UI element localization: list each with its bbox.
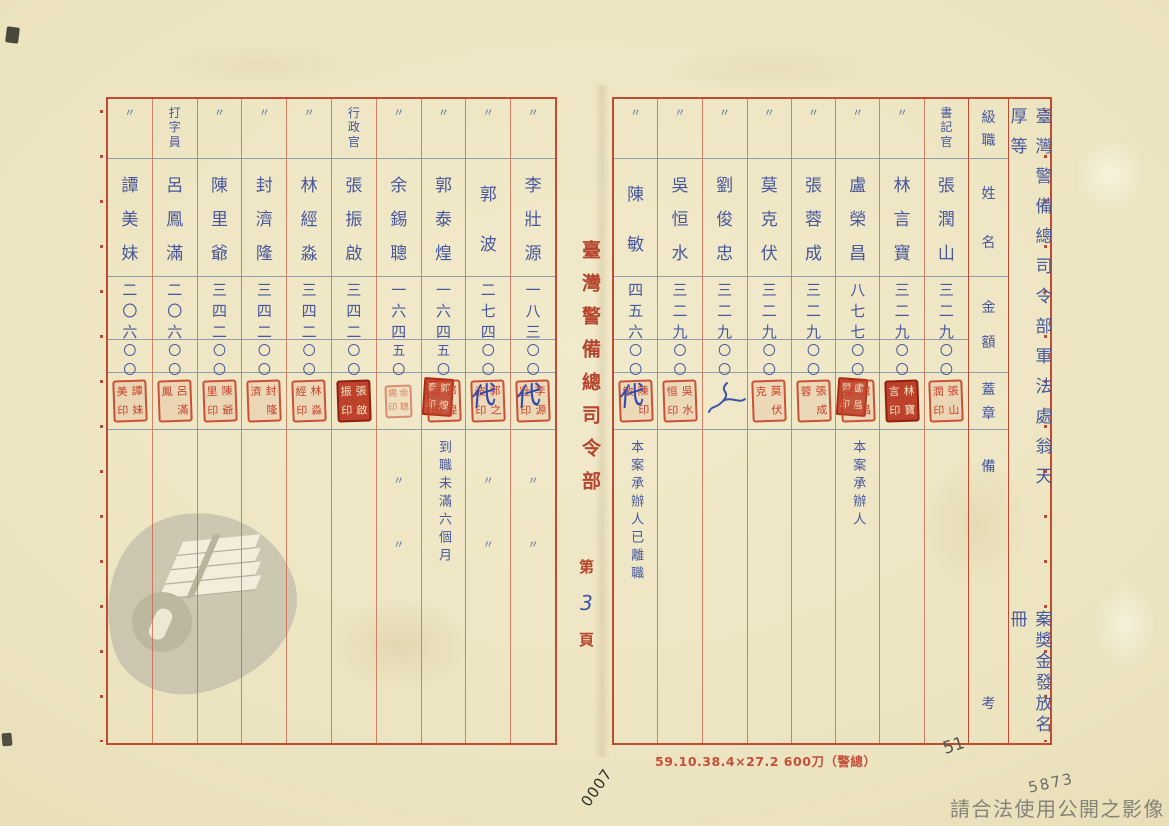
char: 〃	[483, 536, 494, 552]
seal-char: 成	[816, 405, 827, 416]
amount-tail-cell: 五〇	[422, 340, 466, 373]
remark-text: 本案承辦人已離職	[626, 440, 645, 584]
char: 滿	[166, 239, 183, 264]
char: 字	[169, 120, 181, 134]
char: 封	[256, 171, 273, 196]
rank-cell: 行政官	[332, 99, 376, 159]
seal-char: 印	[296, 405, 307, 416]
seal-char: 克	[756, 386, 767, 397]
seal-cell	[703, 373, 747, 430]
char: 張	[345, 171, 362, 196]
roster-column: 〃封濟隆三四二〇〇封濟隆	[241, 99, 286, 743]
char: 隆	[256, 239, 273, 264]
char: 〇	[347, 340, 360, 359]
seal-char: 榮	[844, 386, 855, 397]
char: 三	[346, 279, 361, 300]
char: 譚	[121, 171, 138, 196]
seal-cell: 林經淼印	[287, 373, 331, 430]
seal-char: 淼	[311, 405, 322, 416]
roster-column: 〃林言寶三二九〇〇林言寶印	[879, 99, 923, 743]
char: 三	[302, 279, 317, 300]
char: 三	[212, 279, 227, 300]
char: 五	[628, 300, 643, 321]
name-cell: 張蓉成	[792, 159, 835, 277]
char: 淼	[301, 239, 318, 264]
amount-tail-cell: 〇〇	[880, 340, 923, 373]
char: 二	[481, 279, 496, 300]
name-seal: 余錫聰印	[385, 384, 413, 418]
char: 三	[526, 321, 541, 342]
char: 四	[481, 321, 496, 342]
char: 〇	[527, 340, 540, 359]
seal-cell: 盧榮昌印盧榮昌印	[836, 373, 879, 430]
seal-cell: 張振啟印	[332, 373, 376, 430]
char: 〇	[213, 340, 226, 359]
seal-char: 潤	[933, 386, 944, 397]
char: 陳	[211, 171, 228, 196]
char: 六	[122, 321, 137, 342]
rank-cell: 〃	[198, 99, 242, 159]
amount-cell: 三四二	[242, 277, 286, 340]
rank-cell: 〃	[422, 99, 466, 159]
amount-cell: 一六四	[377, 277, 421, 340]
name-seal: 莫克伏	[752, 379, 787, 422]
name-cell: 吳恒水	[658, 159, 701, 277]
char: 二	[302, 321, 317, 342]
remark-cell: 本案承辦人已離職	[614, 430, 657, 743]
char: 恒	[671, 205, 688, 230]
name-seal: 譚美妹印	[112, 379, 147, 422]
roster-column: 〃劉俊忠三二九〇〇	[702, 99, 747, 743]
name-seal: 郭泰煌印	[426, 379, 461, 422]
char: 李	[525, 171, 542, 196]
roster-column: 〃吳恒水三二九〇〇吳恒水印	[657, 99, 701, 743]
name-cell: 陳里爺	[198, 159, 242, 277]
remark-cell	[658, 430, 701, 743]
amount-tail-cell: 〇〇	[287, 340, 331, 373]
amount-tail-cell: 〇〇	[153, 340, 197, 373]
seal-cell: 陳里爺印	[198, 373, 242, 430]
amount-cell: 一六四	[422, 277, 466, 340]
char: 〇	[168, 340, 181, 359]
char: 張	[805, 171, 822, 196]
seal-char: 隆	[266, 405, 277, 416]
roster-column: 〃林經淼三四二〇〇林經淼印	[286, 99, 331, 743]
char: 〇	[896, 340, 909, 359]
roster-column: 〃張蓉成三二九〇〇張蓉成	[791, 99, 835, 743]
rank-cell: 〃	[614, 99, 657, 159]
char: 三	[762, 279, 777, 300]
char: 一	[391, 279, 406, 300]
char: 〇	[122, 300, 137, 321]
paper-crease	[1060, 120, 1160, 230]
name-seal: 張潤山印	[929, 379, 964, 422]
char: 政	[348, 120, 360, 134]
char: 源	[525, 239, 542, 264]
seal-char: 啟	[356, 405, 367, 416]
char: 六	[167, 321, 182, 342]
seal-cell: 李壯源印代	[511, 373, 555, 430]
char: 〇	[303, 340, 316, 359]
char: 〃	[764, 106, 775, 119]
char: 成	[805, 239, 822, 264]
char: 伏	[761, 239, 778, 264]
header-rank: 級職	[969, 99, 1008, 159]
char: 〃	[483, 472, 494, 488]
char: 盧	[849, 171, 866, 196]
remark-text: 本案承辦人	[848, 440, 867, 530]
seal-char: 里	[206, 386, 217, 397]
amount-cell: 二〇六	[108, 277, 152, 340]
header-remark: 備考	[969, 430, 1008, 743]
char: 二	[672, 300, 687, 321]
roster-column: 〃郭泰煌一六四五〇郭泰煌印郭泰煌印到職未滿六個月	[421, 99, 466, 743]
remark-cell: 〃〃	[466, 430, 510, 743]
char: 煌	[435, 239, 452, 264]
remark-cell	[242, 430, 286, 743]
seal-char: 滿	[177, 405, 188, 416]
char: 九	[717, 321, 732, 342]
seal-char: 經	[296, 386, 307, 397]
amount-tail-cell: 〇〇	[748, 340, 791, 373]
remark-text: 到職未滿六個月	[434, 440, 453, 566]
seal-char: 伏	[771, 405, 782, 416]
left-page-table: 〃李壯源一八三〇〇李壯源印代〃〃〃郭波二七四〇〇郭波之印代〃〃〃郭泰煌一六四五〇…	[106, 97, 557, 745]
name-seal: 封濟隆	[247, 379, 282, 422]
seal-cell: 張蓉成	[792, 373, 835, 430]
roster-column: 〃余錫聰一六四五〇余錫聰印〃〃	[376, 99, 421, 743]
char: 呂	[166, 171, 183, 196]
char: 二	[257, 321, 272, 342]
name-cell: 劉俊忠	[703, 159, 747, 277]
char: 一	[436, 279, 451, 300]
rank-cell: 〃	[880, 99, 923, 159]
header-name: 姓名	[969, 159, 1008, 277]
name-cell: 郭波	[466, 159, 510, 277]
char: 二	[717, 300, 732, 321]
rank-cell: 〃	[511, 99, 555, 159]
roster-column: 〃李壯源一八三〇〇李壯源印代〃〃	[510, 99, 555, 743]
seal-char: 美	[116, 386, 127, 397]
char: 經	[301, 205, 318, 230]
seal-char: 印	[431, 405, 442, 416]
binding-dotted-line-left	[100, 110, 103, 742]
seal-char: 余	[400, 389, 409, 398]
char: 〇	[763, 340, 776, 359]
seal-cell: 呂鳳滿	[153, 373, 197, 430]
char: 書	[940, 106, 952, 120]
char: 莫	[761, 171, 778, 196]
name-cell: 林經淼	[287, 159, 331, 277]
seal-char: 張	[815, 386, 826, 397]
char: 六	[436, 300, 451, 321]
seal-char: 盧	[859, 386, 870, 397]
rank-cell: 〃	[242, 99, 286, 159]
name-cell: 郭泰煌	[422, 159, 466, 277]
char: 〃	[393, 106, 404, 119]
char: 〃	[393, 472, 404, 488]
spine-organization-name: 臺灣警備總司令部	[577, 240, 604, 504]
amount-tail-cell: 〇〇	[511, 340, 555, 373]
seal-char: 莫	[771, 386, 782, 397]
rank-cell: 〃	[108, 99, 152, 159]
char: 林	[301, 171, 318, 196]
char: 〃	[852, 106, 863, 119]
char: 九	[672, 321, 687, 342]
seal-char: 水	[682, 405, 693, 416]
char: 七	[481, 300, 496, 321]
remark-cell: 〃〃	[377, 430, 421, 743]
document-scan: 〃李壯源一八三〇〇李壯源印代〃〃〃郭波二七四〇〇郭波之印代〃〃〃郭泰煌一六四五〇…	[0, 0, 1169, 826]
char: 二	[212, 321, 227, 342]
header-seal: 蓋章	[969, 373, 1008, 430]
amount-tail-cell: 〇〇	[466, 340, 510, 373]
char: 〇	[629, 340, 642, 359]
remark-cell	[703, 430, 747, 743]
char: 〇	[123, 340, 136, 359]
char: 六	[628, 321, 643, 342]
char: 九	[939, 321, 954, 342]
char: 林	[894, 171, 911, 196]
char: 三	[672, 279, 687, 300]
char: 敏	[627, 230, 644, 255]
char: 九	[806, 321, 821, 342]
seal-cell: 莫克伏	[748, 373, 791, 430]
roster-column: 〃譚美妹二〇六〇〇譚美妹印	[108, 99, 152, 743]
page-number-block: 第 3 頁	[579, 556, 594, 650]
seal-char: 印	[934, 405, 945, 416]
amount-cell: 三二九	[792, 277, 835, 340]
amount-tail-cell: 〇〇	[198, 340, 242, 373]
remark-cell	[198, 430, 242, 743]
char: 〇	[940, 340, 953, 359]
char: 記	[940, 120, 952, 134]
amount-tail-cell: 〇〇	[658, 340, 701, 373]
scan-corner-mark	[5, 26, 20, 43]
char: 二	[167, 279, 182, 300]
amount-cell: 三二九	[880, 277, 923, 340]
char: 八	[526, 300, 541, 321]
char: 克	[761, 205, 778, 230]
char: 三	[895, 279, 910, 300]
seal-cell: 陳敏印代	[614, 373, 657, 430]
remark-cell	[287, 430, 331, 743]
name-cell: 張振啟	[332, 159, 376, 277]
char: 四	[302, 300, 317, 321]
seal-cell: 吳恒水印	[658, 373, 701, 430]
name-cell: 余錫聰	[377, 159, 421, 277]
seal-cell: 張潤山印	[925, 373, 968, 430]
amount-cell: 八七七	[836, 277, 879, 340]
amount-cell: 三四二	[198, 277, 242, 340]
seal-char: 煌	[446, 405, 457, 416]
remark-cell	[748, 430, 791, 743]
char: 打	[169, 106, 181, 120]
char: 七	[850, 300, 865, 321]
rank-cell: 〃	[748, 99, 791, 159]
remark-cell	[108, 430, 152, 743]
char: 二	[939, 300, 954, 321]
amount-tail-cell: 〇〇	[792, 340, 835, 373]
header-amount: 金額	[969, 277, 1008, 373]
char: 二	[346, 321, 361, 342]
char: 一	[526, 279, 541, 300]
seal-char: 呂	[176, 386, 187, 397]
char: 啟	[345, 239, 362, 264]
seal-char: 印	[667, 405, 678, 416]
char: 〇	[807, 340, 820, 359]
rank-cell: 〃	[658, 99, 701, 159]
name-seal: 呂鳳滿	[157, 379, 192, 422]
char: 鳳	[166, 205, 183, 230]
char: 劉	[716, 171, 733, 196]
handwritten-signature-mark	[703, 379, 747, 423]
char: 錫	[390, 205, 407, 230]
roster-column: 打字員呂鳳滿二〇六〇〇呂鳳滿	[152, 99, 197, 743]
char: 員	[169, 135, 181, 149]
roster-title-second: 案獎金發放名冊	[1005, 610, 1055, 743]
char: 余	[390, 171, 407, 196]
amount-tail-cell: 〇〇	[614, 340, 657, 373]
name-cell: 莫克伏	[748, 159, 791, 277]
roster-title: 臺灣警備總司令部軍法處翁天厚等	[1005, 107, 1055, 514]
char: 美	[121, 205, 138, 230]
char: 〃	[897, 106, 908, 119]
roster-column: 〃盧榮昌八七七〇〇盧榮昌印盧榮昌印本案承辦人	[835, 99, 879, 743]
char: 九	[762, 321, 777, 342]
name-cell: 封濟隆	[242, 159, 286, 277]
rank-cell: 〃	[792, 99, 835, 159]
seal-char: 妹	[132, 405, 143, 416]
char: 〃	[528, 536, 539, 552]
char: 四	[212, 300, 227, 321]
char: 〇	[718, 340, 731, 359]
char: 四	[628, 279, 643, 300]
seal-cell: 郭波之印代	[466, 373, 510, 430]
remark-cell	[925, 430, 968, 743]
char: 三	[717, 279, 732, 300]
seal-char: 印	[117, 405, 128, 416]
amount-tail-cell: 〇〇	[925, 340, 968, 373]
name-cell: 盧榮昌	[836, 159, 879, 277]
char: 波	[480, 230, 497, 255]
char: 泰	[435, 205, 452, 230]
char: 榮	[849, 205, 866, 230]
char: 〃	[124, 106, 135, 119]
seal-cell: 林言寶印	[880, 373, 923, 430]
char: 〇	[258, 340, 271, 359]
remark-cell	[153, 430, 197, 743]
seal-cell: 余錫聰印	[377, 373, 421, 430]
char: 〃	[674, 106, 685, 119]
char: 二	[895, 300, 910, 321]
handwritten-serial: 0007	[577, 765, 616, 810]
name-cell: 張潤山	[925, 159, 968, 277]
seal-char: 昌	[860, 405, 871, 416]
char: 振	[345, 205, 362, 230]
remark-cell	[332, 430, 376, 743]
amount-cell: 三二九	[658, 277, 701, 340]
char: 水	[671, 239, 688, 264]
char: 六	[391, 300, 406, 321]
rank-cell: 書記官	[925, 99, 968, 159]
char: 二	[122, 279, 137, 300]
char: 吳	[671, 171, 688, 196]
seal-char: 印	[889, 405, 900, 416]
roster-column: 〃陳敏四五六〇〇陳敏印代本案承辦人已離職	[614, 99, 657, 743]
seal-char: 寶	[904, 405, 915, 416]
printer-imprint: 59.10.38.4×27.2 600刀（警總）	[655, 751, 876, 770]
seal-char: 鳳	[161, 386, 172, 397]
char: 七	[850, 321, 865, 342]
name-seal: 張蓉成	[796, 379, 831, 422]
char: 〃	[483, 106, 494, 119]
char: 〃	[808, 106, 819, 119]
char: 俊	[716, 205, 733, 230]
seal-char: 聰	[400, 403, 409, 412]
char: 寶	[894, 239, 911, 264]
rank-cell: 〃	[466, 99, 510, 159]
rank-cell: 〃	[377, 99, 421, 159]
amount-cell: 三二九	[748, 277, 791, 340]
name-seal: 陳里爺印	[202, 379, 237, 422]
char: 九	[895, 321, 910, 342]
roster-column: 書記官張潤山三二九〇〇張潤山印	[924, 99, 968, 743]
rank-cell: 打字員	[153, 99, 197, 159]
char: 行	[348, 106, 360, 120]
seal-char: 言	[889, 386, 900, 397]
char: 〇	[673, 340, 686, 359]
seal-char: 錫	[388, 389, 397, 398]
char: 〇	[851, 340, 864, 359]
char: 山	[938, 239, 955, 264]
right-page-table: 書記官張潤山三二九〇〇張潤山印〃林言寶三二九〇〇林言寶印〃盧榮昌八七七〇〇盧榮昌…	[612, 97, 1052, 745]
page-suffix: 頁	[579, 629, 594, 650]
seal-char: 濟	[251, 386, 262, 397]
char: 官	[940, 135, 952, 149]
char: 忠	[716, 239, 733, 264]
char: 〃	[304, 106, 315, 119]
char: 里	[211, 205, 228, 230]
char: 潤	[938, 205, 955, 230]
char: 郭	[435, 171, 452, 196]
char: 〃	[630, 106, 641, 119]
char: 〃	[214, 106, 225, 119]
char: 四	[391, 321, 406, 342]
seal-char: 爺	[222, 405, 233, 416]
remark-cell: 〃〃	[511, 430, 555, 743]
char: 〃	[528, 106, 539, 119]
amount-cell: 三二九	[925, 277, 968, 340]
amount-cell: 二〇六	[153, 277, 197, 340]
remark-cell	[880, 430, 923, 743]
amount-tail-cell: 〇〇	[332, 340, 376, 373]
seal-char: 張	[948, 386, 959, 397]
seal-char: 泰	[430, 386, 441, 397]
seal-char: 封	[266, 386, 277, 397]
amount-cell: 二七四	[466, 277, 510, 340]
name-cell: 陳敏	[614, 159, 657, 277]
amount-cell: 三二九	[703, 277, 747, 340]
char: 張	[938, 171, 955, 196]
name-cell: 呂鳳滿	[153, 159, 197, 277]
name-seal: 林言寶印	[884, 379, 919, 422]
char: 〇	[167, 300, 182, 321]
char: 濟	[256, 205, 273, 230]
right-page-columns: 書記官張潤山三二九〇〇張潤山印〃林言寶三二九〇〇林言寶印〃盧榮昌八七七〇〇盧榮昌…	[614, 99, 968, 743]
seal-char: 林	[311, 386, 322, 397]
roster-column: 〃陳里爺三四二〇〇陳里爺印	[197, 99, 242, 743]
